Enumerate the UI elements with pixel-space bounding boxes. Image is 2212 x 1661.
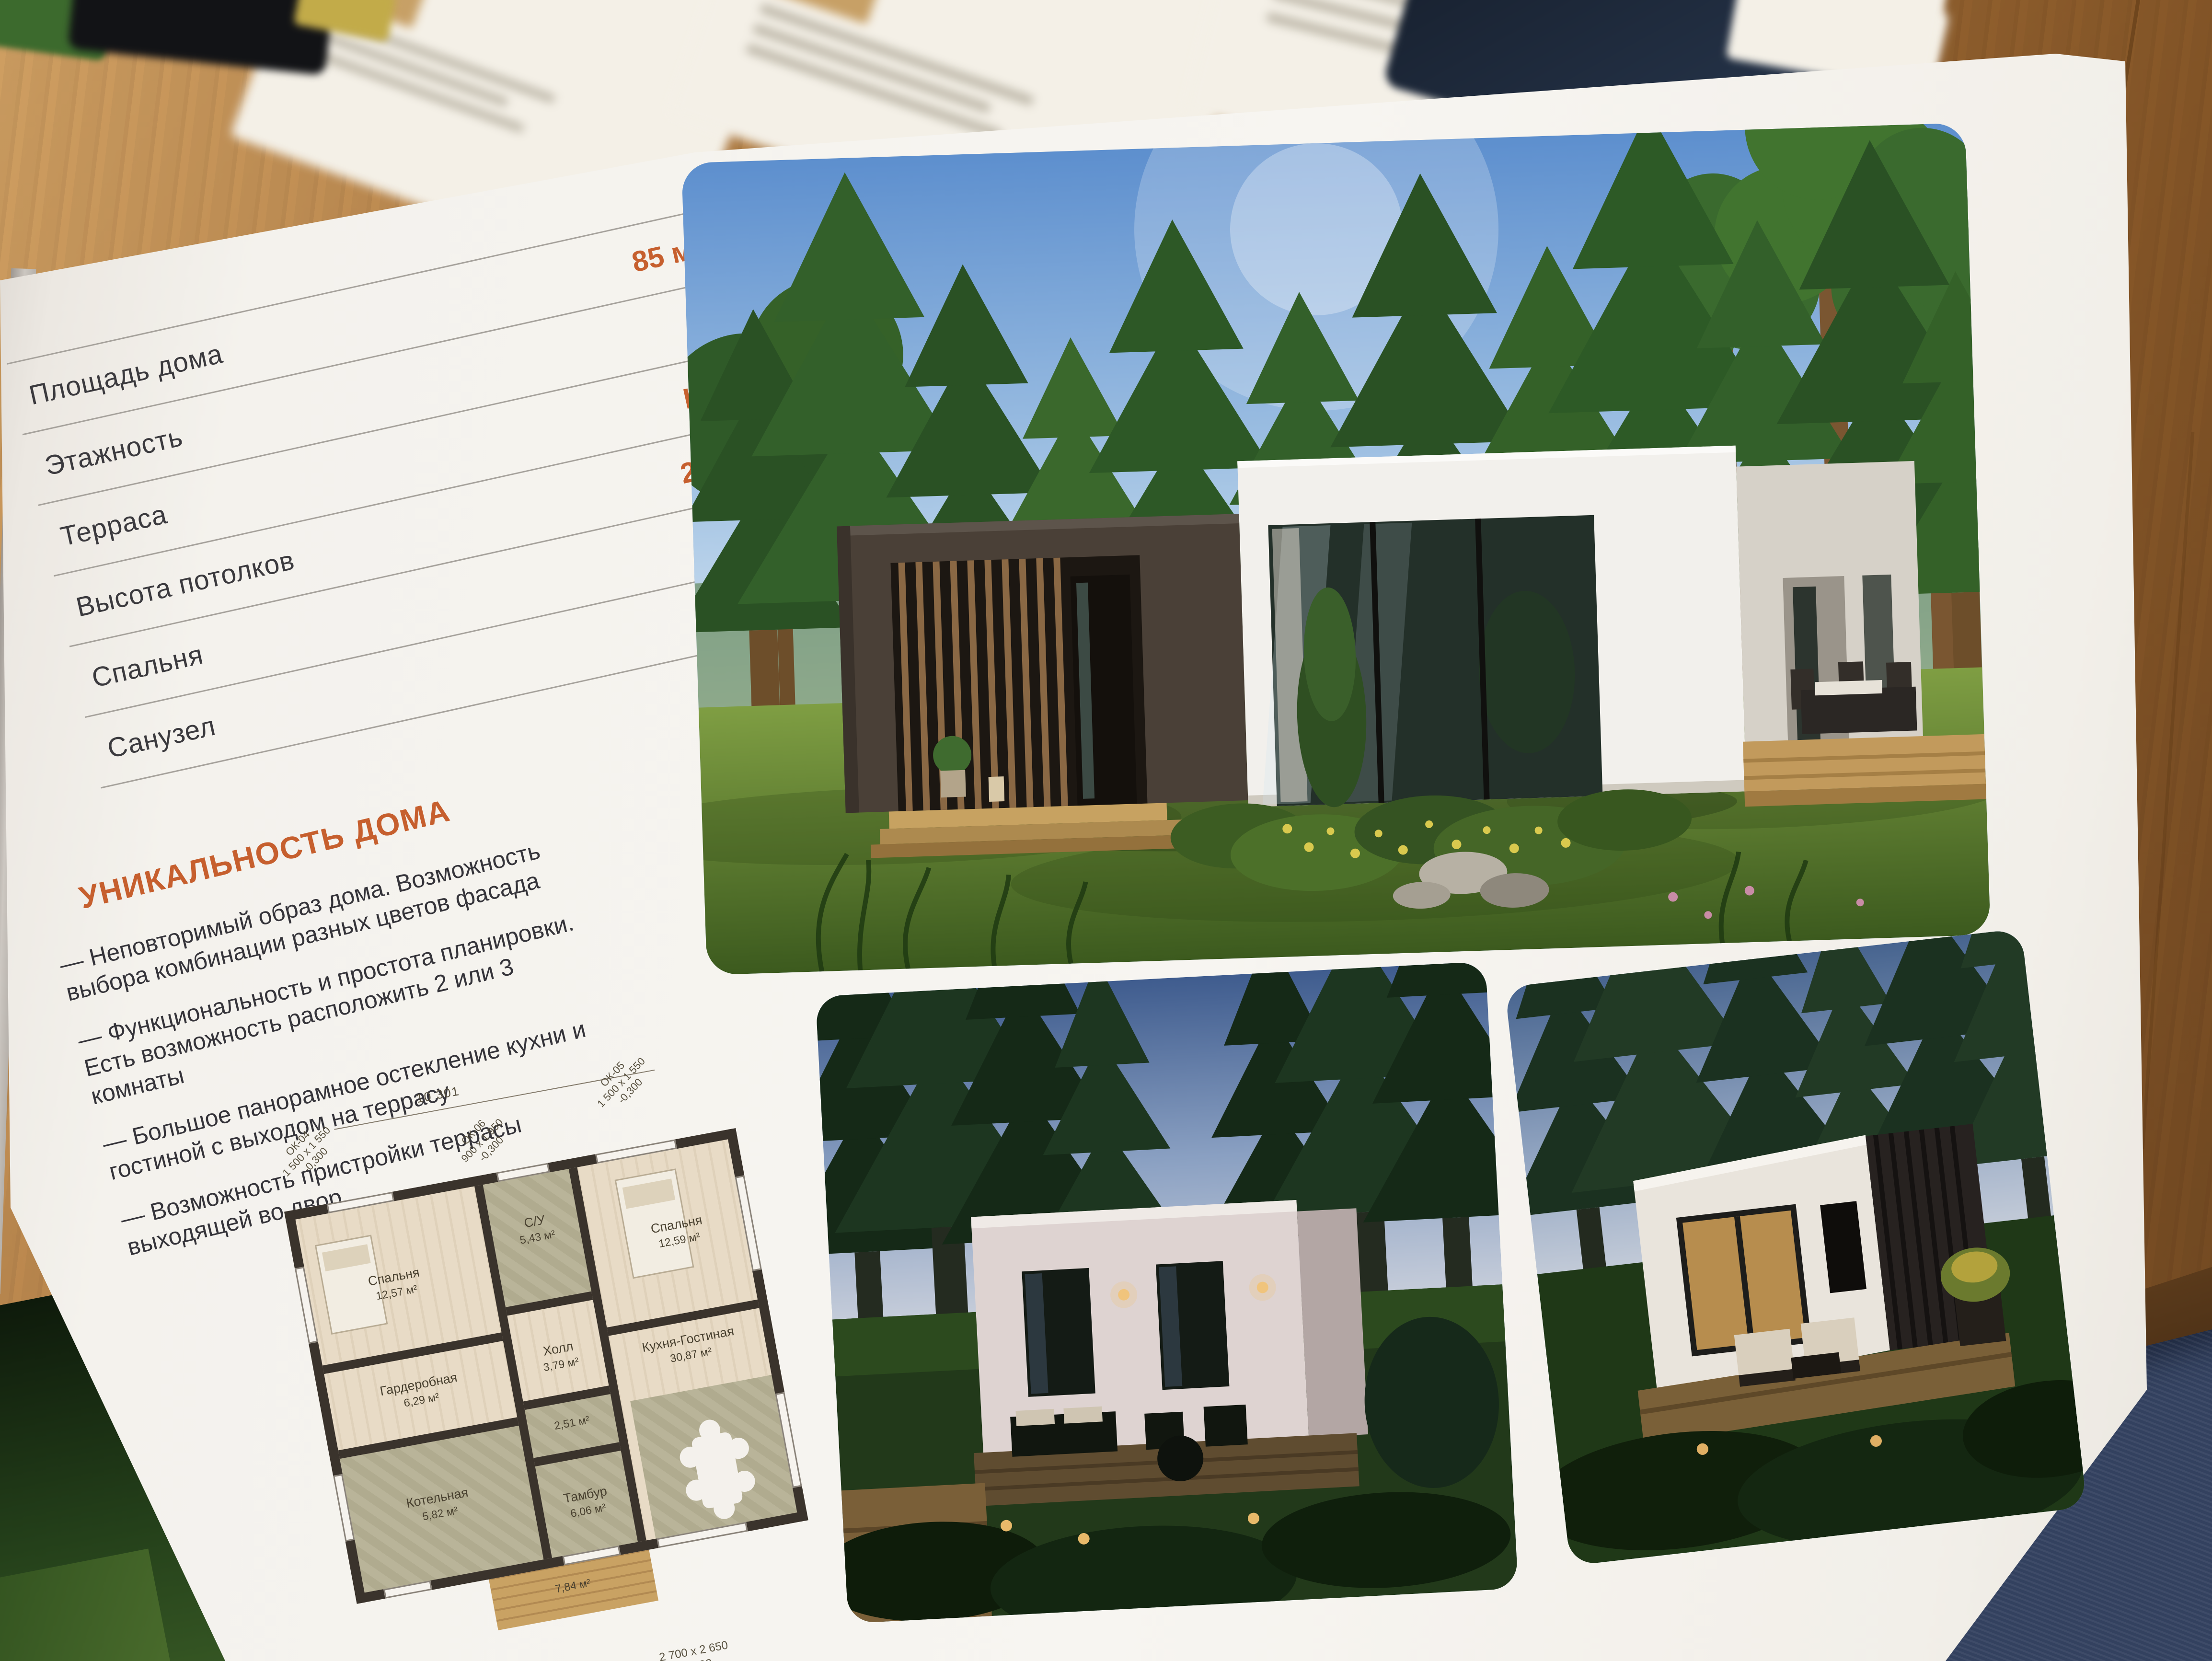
room-name: С/У	[523, 1212, 546, 1231]
spec-label: Санузел	[104, 710, 219, 765]
floor-plan-drawing: Спальня 12,57 м² С/У 5,43 м² Спальня 12,…	[284, 1128, 828, 1661]
rear-photo-illustration	[816, 961, 1519, 1623]
spec-label: Этажность	[42, 421, 185, 482]
window-tag: ОК-04 1 500 х 1 550 -0,300	[271, 1116, 342, 1188]
desk-scene: Площадь дома 85 м² Этажность 1 Терраса Н…	[0, 0, 2212, 1661]
plan-bottom-dimension: 2 700 х 2 650 ОК-02	[658, 1638, 732, 1661]
window-tag: ОК-05 1 500 х 1 550 -0,300	[586, 1047, 657, 1118]
spec-label: Спальня	[89, 639, 206, 694]
window-tag: ОК-06 900 х 1 950 -0,300	[450, 1108, 514, 1173]
rear-exterior-photo	[816, 961, 1519, 1623]
plan-width-dimension: 10 301	[415, 1084, 461, 1106]
terrace-exterior-photo	[1505, 928, 2087, 1566]
main-exterior-photo	[681, 123, 1991, 975]
spec-label: Терраса	[58, 498, 170, 553]
terrace-photo-illustration	[1505, 928, 2087, 1566]
main-photo-illustration	[681, 123, 1991, 975]
